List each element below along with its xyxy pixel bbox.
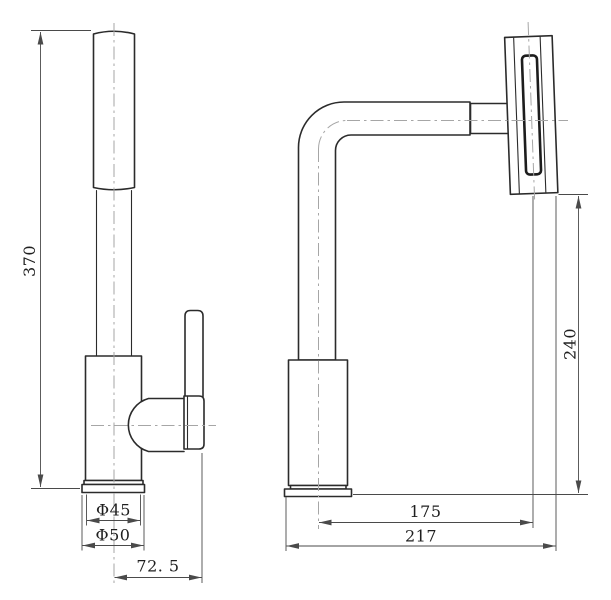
extension-line	[353, 195, 588, 495]
spray-head-side	[504, 21, 558, 204]
spout-connector	[471, 104, 509, 134]
flange-base	[82, 485, 145, 493]
base-flange-front	[82, 481, 145, 493]
handle-lever	[185, 311, 203, 397]
dimension-label-overall-depth: 217	[405, 527, 437, 546]
spout-pipe	[298, 102, 470, 360]
dim-spout-height: 240	[353, 195, 588, 495]
extension-line	[31, 31, 91, 489]
dim-spout-reach: 175	[319, 196, 533, 528]
technical-drawing-page: 370 Φ45 Φ50 72. 5	[0, 0, 611, 600]
dim-overall-height: 370	[20, 31, 91, 489]
side-view	[285, 21, 569, 529]
faucet-technical-drawing: 370 Φ45 Φ50 72. 5	[0, 0, 611, 600]
dimension-label-base-diameter: Φ50	[96, 526, 131, 545]
dimension-label-handle-offset: 72. 5	[136, 557, 179, 576]
dimension-label-spout-height: 240	[561, 328, 580, 360]
dimension-label-spout-reach: 175	[409, 502, 441, 521]
dimension-label-overall-height: 370	[20, 245, 39, 277]
dimension-label-body-diameter: Φ45	[96, 501, 131, 520]
spray-head-slot	[522, 55, 541, 174]
